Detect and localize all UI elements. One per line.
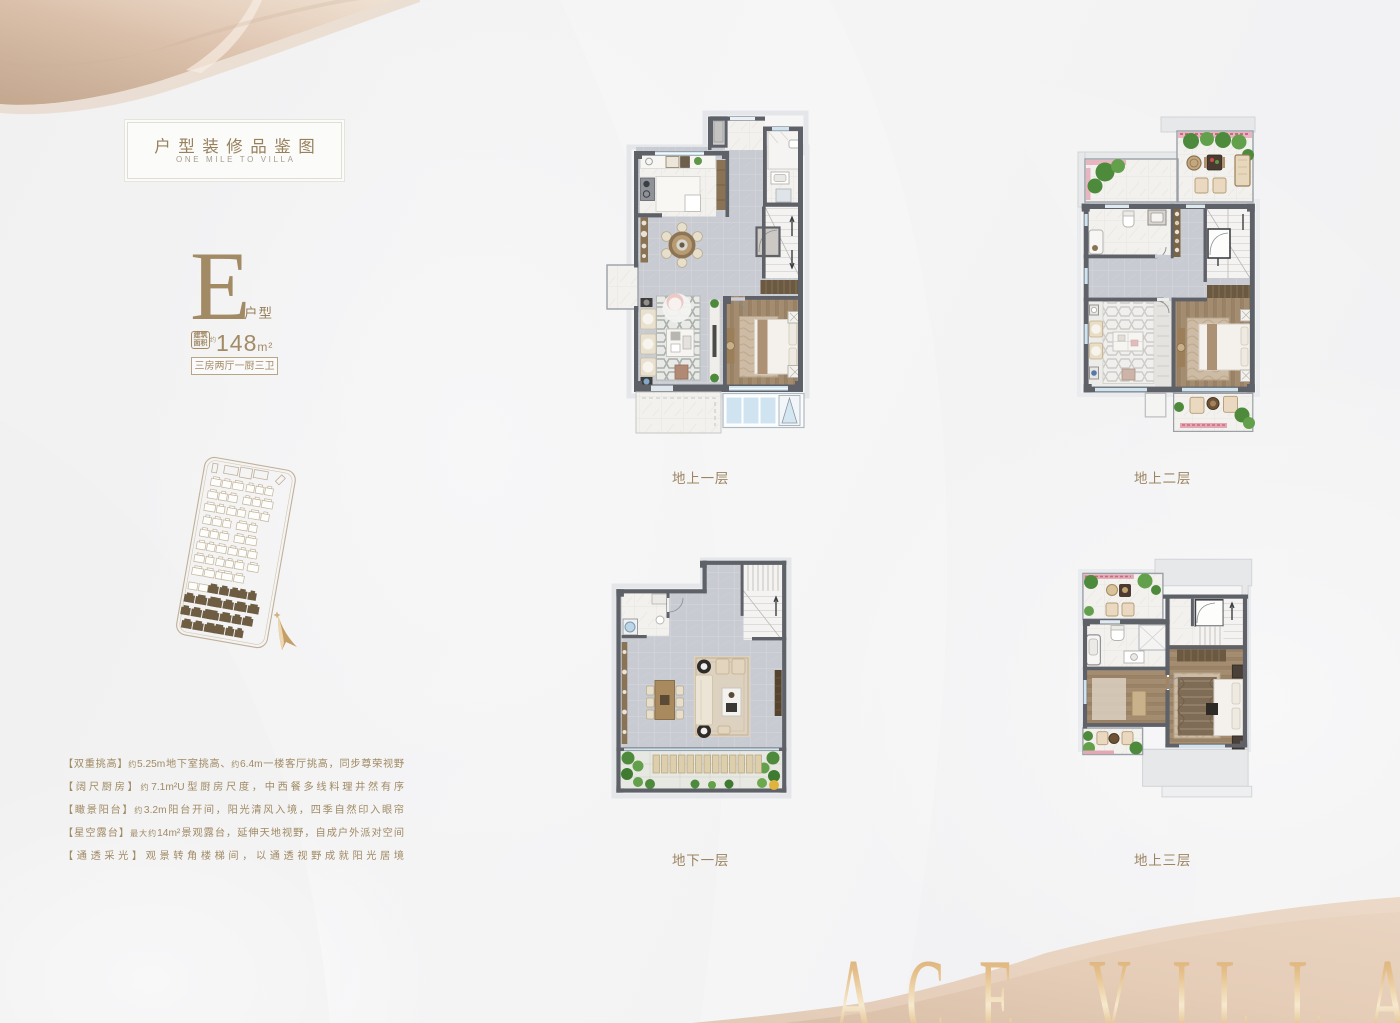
svg-text:E: E (979, 934, 1014, 1023)
svg-text:I: I (1172, 934, 1191, 1023)
svg-text:L: L (1288, 934, 1323, 1023)
svg-text:A: A (1367, 934, 1400, 1023)
svg-text:A: A (833, 934, 875, 1023)
svg-text:C: C (906, 934, 945, 1023)
svg-text:L: L (1215, 934, 1250, 1023)
svg-text:V: V (1089, 934, 1131, 1023)
